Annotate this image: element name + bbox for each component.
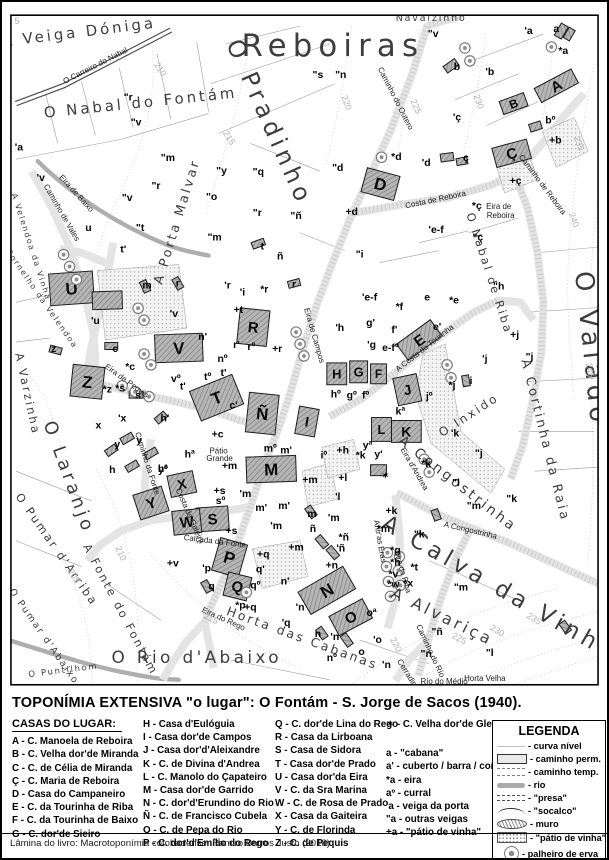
ann-label: e' [433, 322, 441, 333]
ann-label: "m [467, 501, 481, 512]
ann-label: 'j [482, 354, 487, 365]
key-item: A - C. Manoela de Reboira [12, 735, 138, 748]
ann-label: a [553, 24, 559, 35]
key-column-3: Q - C. dor'de Lina do RegoR - Casa da Li… [275, 718, 398, 850]
building-letter: H [332, 366, 341, 381]
legend-label: - caminho perm. [530, 754, 601, 764]
contlbl-label: 215 [221, 129, 237, 147]
ann-label: yª [363, 440, 373, 451]
ann-label: "ñ [290, 211, 301, 222]
building-letter: R [247, 320, 260, 337]
ann-label: "ç [472, 233, 483, 244]
ann-label: *d [391, 152, 401, 163]
ann-label: *x [403, 578, 413, 589]
ann-label: r [292, 279, 296, 290]
ann-label: f' [391, 325, 397, 336]
ann-label: i [469, 376, 472, 387]
ann-label: "q [253, 167, 264, 178]
ann-label: *k [421, 459, 431, 470]
ann-label: 'ñ [336, 544, 345, 555]
ann-label: t' [221, 368, 227, 379]
ann-label: *s [115, 384, 125, 395]
ann-label: h' [160, 414, 169, 425]
legend-row: - curva nível [497, 741, 601, 751]
building-house-Ñ: Ñ [245, 392, 279, 435]
building-house-J: J [393, 374, 422, 406]
legend-symbol-river-icon [497, 783, 525, 788]
palheiro-icon [139, 349, 149, 359]
ann-label: 'o [373, 635, 382, 646]
map-sheet: ABÇDEFGHIJKLMNÑOPQRSTUVWXYZ A Veiga Dóni… [0, 0, 609, 860]
ann-label: +m [222, 461, 237, 472]
ann-label: qº [250, 580, 260, 591]
ann-label: 'a [524, 26, 532, 37]
building-house-V: V [155, 333, 204, 362]
ann-label: mº [264, 443, 277, 454]
ann-label: +m [302, 475, 317, 486]
legend-row: - "presa" [497, 793, 601, 803]
ann-label: *z [103, 385, 112, 396]
key-item: Ñ - C. de Francisco Cubela [143, 810, 274, 823]
palheiro-icon [376, 152, 386, 162]
key-item: U - Casa dor'da Eira [275, 771, 398, 784]
key-item: N - C. dor'd'Erundino do Rio [143, 797, 274, 810]
ann-label: n [315, 629, 321, 640]
key-item: Ç - C. Maria de Reboira [12, 775, 138, 788]
contlbl-label: 210 [113, 545, 128, 563]
ann-label: 'k [451, 428, 459, 439]
ann-label: t [261, 242, 265, 253]
key-item: "a - outras veigas [386, 813, 506, 826]
legend-heading: LEGENDA [497, 724, 601, 738]
key-item: J - Casa dor'd'Aleixandre [143, 744, 274, 757]
legend-row: - "socalco" [497, 806, 601, 816]
palheiro-icon [64, 261, 74, 271]
ann-label: 'g [367, 340, 376, 351]
ann-label: "m [161, 153, 175, 164]
ann-label: "r [124, 93, 133, 104]
ann-label: 'm [240, 489, 252, 500]
ann-label: *ñ [339, 533, 349, 544]
ann-label: g' [366, 318, 375, 329]
key-item: *a - eira [386, 774, 506, 787]
key-item: V - C. da Sra Marina [275, 784, 398, 797]
ann-label: "y [216, 166, 227, 177]
legend-label: - "presa" [528, 793, 567, 803]
ann-label: +d [345, 207, 357, 218]
building-letter: V [173, 339, 186, 358]
ann-label: "m [207, 233, 221, 244]
ann-label: sº [216, 496, 226, 507]
ann-label: b [454, 62, 460, 73]
legend-row: - caminho perm. [497, 754, 601, 764]
ann-label: s [135, 391, 141, 402]
legend-symbol-road-temp-icon [497, 768, 525, 776]
legend-row: - rio [497, 780, 601, 790]
key-item: R - Casa da Lirboana [275, 731, 398, 744]
roadlbl-label: A Congostrinha [443, 520, 498, 541]
ann-label: rº [247, 342, 255, 353]
ann-label: "i [356, 250, 364, 261]
ann-label: y [136, 435, 142, 446]
key-item: K - C. de Divina d'Andrea [143, 758, 274, 771]
legend-label: - curva nível [528, 741, 582, 751]
map-title: TOPONÍMIA EXTENSIVA "o lugar": O Fontám … [2, 692, 607, 712]
ann-label: nº [327, 653, 337, 664]
ann-label: 'e-f [362, 292, 378, 303]
building-letter: L [378, 422, 386, 437]
building-house-L: L [372, 418, 392, 442]
ann-label: ç [463, 153, 469, 164]
key-item: C - C. de Célia de Miranda [12, 762, 138, 775]
ann-label: 'n [330, 632, 339, 643]
ann-label: *c [125, 362, 135, 373]
building-house-D: D [361, 168, 400, 201]
ann-label: t' [120, 245, 126, 256]
contlbl-label: 5 [14, 16, 19, 26]
ann-label: ñ [310, 524, 316, 535]
key-item: a' - cuberto / barra / corte. [386, 760, 506, 773]
ann-label: m' [278, 501, 290, 512]
palheiro-icon [295, 339, 305, 349]
building-cabana [431, 509, 441, 522]
building-letter: Z [81, 372, 93, 392]
building-house-A: A [534, 69, 579, 104]
ann-label: y [114, 439, 120, 450]
roadlbl-label: Reboira [487, 211, 515, 220]
ann-label: hª [158, 464, 168, 475]
ann-label: "l [452, 478, 460, 489]
ann-label: 'q [282, 618, 291, 629]
building-house-T: T [189, 374, 243, 421]
building-letter: S [207, 512, 218, 529]
contlbl-label: 225 [408, 98, 423, 116]
ann-label: z [51, 344, 56, 355]
ann-label: m [307, 509, 316, 520]
key-item: L - C. Manolo do Çapateiro [143, 771, 274, 784]
ann-label: +v [167, 559, 179, 570]
ann-label: +n [326, 561, 338, 572]
palheiro-icon [460, 43, 470, 53]
key-item: W - C. de Rosa de Prado [275, 797, 398, 810]
ann-label: y' [374, 449, 382, 460]
contlbl-label: 210 [152, 60, 169, 78]
roadlbl-label: Horta Velha [464, 674, 506, 683]
building-cabana [315, 535, 329, 549]
key-item: H - Casa d'Eulóguia [143, 718, 274, 731]
legend-symbol-presa-icon [497, 795, 525, 801]
ann-label: 'p [202, 564, 211, 575]
building-house-Z: Z [70, 364, 105, 399]
ann-label: +l [338, 473, 347, 484]
building-footprint [125, 460, 140, 472]
ann-label: m [142, 280, 151, 291]
ann-label: "v [428, 29, 439, 40]
ann-label: fº [362, 391, 369, 402]
place-label: O Nabal do Fontám [43, 84, 238, 122]
ann-label: *k [356, 450, 366, 461]
building-cabana [529, 121, 543, 132]
ann-label: "r [151, 181, 160, 192]
key-column-symbols: ✶ - C. Velha dor'de Glez a - "cabana"a' … [386, 718, 506, 840]
palheiro-icon [299, 351, 309, 361]
ann-label: "n [421, 649, 432, 660]
key-heading: CASAS DO LUGAR: [12, 718, 122, 732]
key-item: T - Casa dor'de Prado [275, 758, 398, 771]
ann-label: hª [185, 449, 195, 460]
ann-label: m' [255, 503, 267, 514]
building-house-G: G [350, 361, 368, 383]
key-item: 'a - veiga da porta [386, 800, 506, 813]
key-item: F - C. da Tourinha de Baixo [12, 814, 138, 827]
ann-label: "n [335, 70, 346, 81]
ann-label: "t [136, 223, 145, 234]
ann-label: "ñ [431, 627, 442, 638]
ann-label: +ç [510, 176, 522, 187]
ann-label: kª [396, 407, 406, 418]
ann-label: oª [366, 608, 376, 619]
legend-symbol-socalco-icon [497, 808, 525, 815]
building-letter: Ñ [255, 403, 269, 424]
ann-label: +r [272, 344, 282, 355]
ann-label: +q [257, 550, 269, 561]
ann-label: *t [411, 563, 419, 574]
key-item: a - "cabana" [386, 747, 506, 760]
ann-label: 'n [382, 660, 391, 671]
key-item: Q - C. dor'de Lina do Rego [275, 718, 398, 731]
palheiro-icon [465, 56, 475, 66]
building-cabana [92, 291, 122, 310]
building-letter: M [264, 460, 279, 479]
ann-label: *e [449, 295, 459, 306]
key-item: X - Casa da Gaiteira [275, 810, 398, 823]
ann-label: "k [506, 494, 517, 505]
ann-label: *m [377, 524, 390, 535]
palheiro-icon [133, 303, 143, 313]
ann-label: "k [414, 530, 425, 541]
ann-label: o [358, 647, 364, 658]
key-item: D - Casa do Campaneiro [12, 788, 138, 801]
ann-label: jº [425, 392, 433, 403]
ann-label: n' [281, 576, 290, 587]
roadlbl-label: O Carreiro do Nabal [62, 45, 130, 85]
building-footprint [431, 509, 441, 522]
ann-label: *r [260, 284, 268, 295]
palheiro-icon [58, 249, 68, 259]
ann-label: *f [396, 302, 404, 313]
place-label: Reboiras [241, 28, 424, 64]
ann-label: m' [280, 445, 292, 456]
ann-label: *g [390, 546, 400, 557]
palheiro-icon [71, 274, 81, 284]
ann-label: 'x [118, 414, 126, 425]
ann-label: 'd [422, 158, 431, 169]
ann-label: *j [449, 381, 456, 392]
key-item: B - C. Velha dor'de Miranda [12, 748, 138, 761]
building-cabana [440, 152, 454, 162]
building-house-U: U [49, 271, 95, 306]
key-item: I - Casa dor'de Campos [143, 731, 274, 744]
ann-label: hº [331, 390, 341, 401]
ann-label: 'u [91, 316, 100, 327]
ann-label: +t [234, 305, 244, 316]
contlbl-label: 220 [339, 94, 354, 111]
building-footprint [529, 121, 543, 132]
palheiro-icon [291, 327, 301, 337]
building-footprint [315, 535, 329, 549]
ann-label: +q [244, 602, 256, 613]
place-label: O Valado [568, 270, 607, 429]
building-footprint [92, 291, 122, 310]
building-cabana [120, 432, 135, 444]
legend-label: - "socalco" [528, 806, 577, 816]
ann-label: h [109, 465, 115, 476]
key-column-2: H - Casa d'EulóguiaI - Casa dor'de Campo… [143, 718, 274, 850]
palheiro-icon [146, 360, 156, 370]
source-note: Lâmina do livro: Macrotoponímia cotobade… [2, 833, 607, 858]
ann-label: t' [180, 382, 186, 393]
ann-label: 'b [485, 67, 494, 78]
legend-symbol-contour-icon [497, 741, 525, 751]
ann-label: *a [558, 46, 568, 57]
building-house-M: M [246, 455, 297, 483]
building-house-B: B [499, 93, 528, 115]
ann-label: "v [122, 193, 133, 204]
ann-label: "o [206, 192, 217, 203]
ann-label: 'ç [453, 112, 461, 123]
contlbl-label: 240 [567, 211, 582, 228]
legend-label: - rio [528, 780, 545, 790]
ann-label: +m [288, 543, 303, 554]
ann-label: q' [256, 565, 265, 576]
ann-label: r [176, 278, 180, 289]
ann-label: 'l [335, 492, 340, 503]
ann-label: "m [454, 582, 468, 593]
ann-label: "j [526, 352, 534, 363]
building-footprint [440, 152, 454, 162]
map-legend-panel: TOPONÍMIA EXTENSIVA "o lugar": O Fontám … [2, 692, 607, 858]
contlbl-label: 230 [471, 93, 486, 110]
ann-label: e [424, 292, 430, 303]
key-item: E - C. da Tourinha de Riba [12, 801, 138, 814]
ann-label: bº [545, 115, 555, 126]
ann-label: 'm [328, 513, 340, 524]
building-house-F: F [371, 364, 387, 384]
ann-label: +h [337, 445, 349, 456]
ann-label: "h [493, 281, 504, 292]
ann-label: "v [131, 117, 142, 128]
ann-label: "d [332, 163, 343, 174]
ann-label: +j [510, 330, 519, 341]
ann-label: r' [233, 340, 240, 351]
ann-label: *w [387, 579, 400, 590]
building-footprint [120, 432, 135, 444]
star-house-entry: ✶ - C. Velha dor'de Glez [386, 718, 506, 731]
map-canvas: ABÇDEFGHIJKLMNÑOPQRSTUVWXYZ A Veiga Dóni… [2, 2, 607, 692]
palheiro-icon [546, 42, 556, 52]
legend-row: - muro [497, 819, 601, 829]
building-letter: G [354, 364, 364, 379]
ann-label: nº [217, 354, 227, 365]
legend-label: - caminho temp. [528, 767, 598, 777]
legend-symbol-muro-icon [497, 819, 527, 829]
key-item: M - Casa dor'de Garrido [143, 784, 274, 797]
ann-label: 'v [37, 173, 45, 184]
ann-label: "l [486, 648, 494, 659]
roadlbl-label: Costa de Reboira [404, 189, 467, 211]
place-label: A Veiga Dóniga [2, 14, 157, 51]
ann-label: +s [226, 526, 238, 537]
legend-label: - muro [530, 819, 559, 829]
ann-label: gº [347, 391, 357, 402]
ann-label: 'a [15, 142, 23, 153]
ann-label: 'r [224, 280, 231, 291]
ann-label: +b [549, 135, 561, 146]
ann-label: *ç [472, 201, 482, 212]
key-item: aº - curral [386, 787, 506, 800]
roadlbl-label: Eira de [486, 202, 512, 211]
palheiro-icon [139, 315, 149, 325]
ann-label: 'e-f [429, 225, 445, 236]
palheiro-icon [442, 360, 452, 370]
building-letter: F [375, 367, 382, 381]
building-house-I: I [295, 406, 319, 437]
ann-label: 'm [270, 521, 282, 532]
ann-label: ñ [277, 252, 283, 263]
ann-label: u [85, 223, 91, 234]
legend-symbol-road-icon [497, 754, 527, 764]
ann-label: e-fº [382, 343, 399, 354]
ann-label: "s [313, 70, 324, 81]
ann-label: n' [198, 332, 207, 343]
ann-label: 'n [296, 602, 305, 613]
ann-label: "r [253, 208, 262, 219]
ann-label: c [112, 344, 118, 355]
ann-label: *h [390, 558, 400, 569]
ann-label: +c [212, 429, 224, 440]
place-label: A Varzinha [12, 352, 43, 437]
building-cabana [125, 460, 140, 472]
legend-row: - caminho temp. [497, 767, 601, 777]
building-house-H: H [327, 363, 347, 385]
place-label: O Laranjo [39, 418, 99, 536]
ann-label: *v [388, 569, 398, 580]
houses-key: CASAS DO LUGAR: A - C. Manoela de Reboir… [2, 716, 607, 836]
ann-label: c' [229, 401, 237, 412]
ann-label: x [95, 420, 101, 431]
key-column-1: CASAS DO LUGAR: A - C. Manoela de Reboir… [12, 718, 138, 841]
ann-label: 'h [335, 323, 344, 334]
ann-label: 'i [240, 287, 245, 298]
ann-label: tº [204, 372, 211, 383]
ann-label: "j [475, 448, 483, 459]
symbol-entries: a - "cabana"a' - cuberto / barra / corte… [386, 747, 506, 839]
ann-label: iº [321, 450, 328, 461]
ann-label: 'v [170, 309, 178, 320]
ann-label: ✶ [381, 471, 390, 482]
ann-label: q [208, 581, 214, 592]
ann-label: +k [385, 506, 397, 517]
key-item: S - Casa de Sidora [275, 744, 398, 757]
